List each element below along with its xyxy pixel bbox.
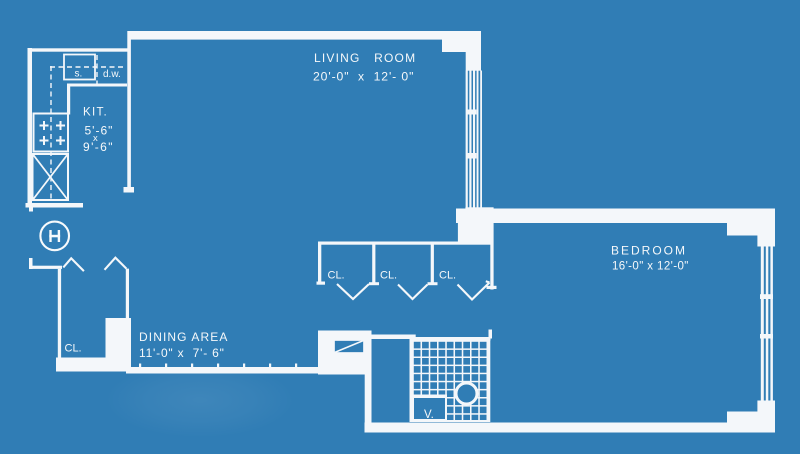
svg-text:DINING AREA: DINING AREA: [139, 330, 228, 344]
svg-text:20'-0" x 12'- 0": 20'-0" x 12'- 0": [313, 70, 414, 84]
svg-text:BEDROOM: BEDROOM: [611, 244, 687, 258]
svg-text:16'-0" x 12'-0": 16'-0" x 12'-0": [612, 261, 689, 273]
svg-text:LIVING ROOM: LIVING ROOM: [314, 51, 416, 65]
svg-text:V.: V.: [424, 409, 434, 421]
svg-text:CL.: CL.: [380, 270, 397, 282]
svg-text:s.: s.: [75, 69, 83, 80]
svg-text:9'-6": 9'-6": [83, 140, 114, 154]
svg-text:CL.: CL.: [328, 270, 345, 282]
svg-text:CL.: CL.: [65, 343, 82, 355]
svg-text:CL.: CL.: [439, 270, 456, 282]
svg-text:5'-6": 5'-6": [85, 124, 114, 138]
svg-text:11'-0" x 7'- 6": 11'-0" x 7'- 6": [139, 346, 225, 360]
svg-text:KIT.: KIT.: [83, 107, 108, 119]
svg-text:d.w.: d.w.: [103, 69, 121, 80]
